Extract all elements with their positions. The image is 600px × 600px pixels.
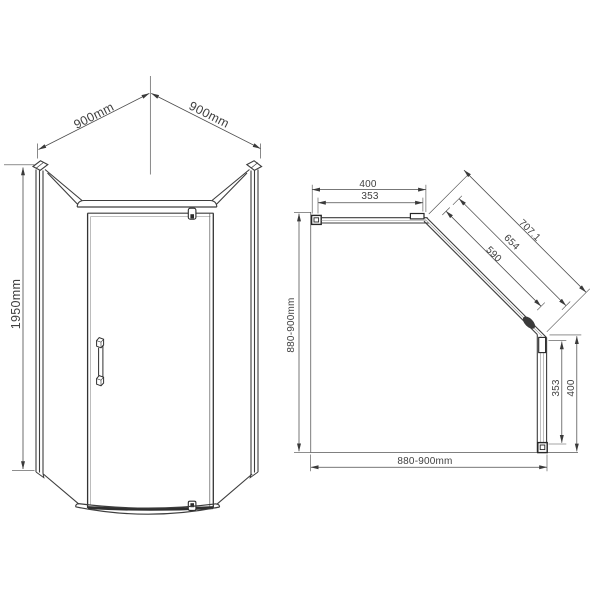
plan-right-glass-label: 353 [552, 379, 562, 396]
front-height-label: 1950mm [10, 279, 23, 329]
plan-left-depth-label: 880-900mm [287, 297, 297, 352]
plan-wall-profile-bottom [538, 443, 547, 453]
plan-view [294, 170, 590, 471]
shower-tray [43, 474, 252, 514]
plan-wall-profile-top [312, 215, 322, 224]
shower-door [88, 213, 214, 509]
door-pivot-top [188, 208, 196, 219]
top-frame [45, 170, 250, 217]
plan-right-panel [537, 335, 546, 453]
shower-enclosure-drawing [0, 0, 600, 600]
plan-top-overall-label: 400 [359, 180, 376, 190]
front-elevation [4, 76, 262, 514]
plan-dimensions [294, 170, 590, 471]
plan-right-overall-label: 400 [567, 379, 577, 396]
plan-top-glass-label: 353 [361, 192, 378, 202]
door-hinge-plan [521, 314, 538, 331]
plan-bottom-width-label: 880-900mm [397, 457, 452, 467]
technical-drawing-canvas: 900mm 900mm 1950mm 400 353 707.1 654 590… [0, 0, 600, 600]
door-handle-icon [97, 338, 104, 386]
plan-top-panel [321, 214, 429, 224]
left-wall-profile [33, 161, 48, 478]
right-wall-profile [247, 161, 262, 478]
